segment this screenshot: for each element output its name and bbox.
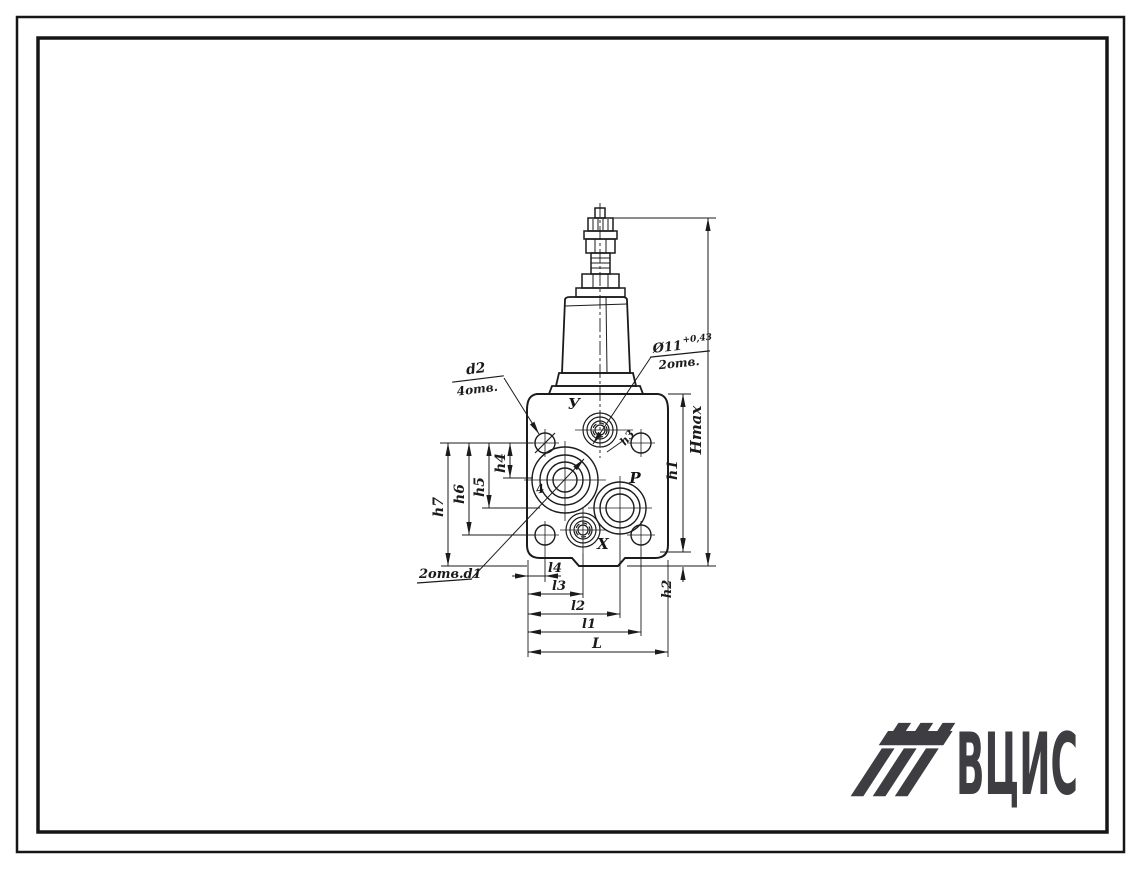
hex-facets	[595, 239, 606, 253]
inner-frame	[38, 38, 1107, 832]
callout-d11-qty: 2отв.	[657, 354, 700, 372]
blueprint-page: У Р Х 4 h7 h6 h5 h4	[0, 0, 1139, 869]
dim-label-h3: h3	[617, 427, 637, 448]
dim-label-l2: l2	[571, 599, 585, 614]
callout-d2-dia: d2	[465, 360, 487, 378]
dimensions-right: h1 Hmax h2 h3	[604, 218, 716, 598]
vcis-emblem-icon	[845, 723, 957, 796]
dim-label-L: L	[591, 636, 602, 652]
thread-lines	[591, 258, 610, 268]
adjustment-screw	[576, 208, 625, 297]
spring-housing	[549, 297, 643, 394]
vcis-logo: ВЦИС	[845, 715, 1078, 815]
port-label-p: Р	[628, 469, 641, 487]
knurl-hatch	[593, 219, 608, 230]
port-label-x: Х	[596, 535, 610, 553]
dim-label-h6: h6	[452, 484, 468, 504]
dim-label-h5: h5	[472, 477, 488, 497]
port-label-u: У	[568, 395, 582, 413]
dim-label-h4: h4	[493, 453, 509, 473]
dim-label-hmax: Hmax	[687, 405, 705, 456]
port-label-left: 4	[535, 481, 546, 496]
callout-corner-holes: d2 4отв.	[450, 358, 539, 434]
valve-drawing: У Р Х 4 h7 h6 h5 h4	[417, 203, 716, 657]
dim-label-l3: l3	[552, 579, 566, 594]
callout-d1-label: 2отв.d1	[418, 567, 482, 582]
dim-label-h2: h2	[660, 580, 675, 599]
logo-text: ВЦИС	[956, 715, 1078, 815]
dimensions-left: h7 h6 h5 h4	[431, 443, 540, 566]
dim-label-l4: l4	[548, 561, 562, 576]
dim-label-h7: h7	[431, 497, 447, 517]
valve-drawing-sheet: У Р Х 4 h7 h6 h5 h4	[0, 0, 1139, 869]
hex-facets-lower	[593, 274, 608, 288]
dim-label-h1: h1	[665, 460, 681, 480]
dim-label-l1: l1	[582, 617, 596, 632]
callout-d2-qty: 4отв.	[456, 380, 499, 399]
